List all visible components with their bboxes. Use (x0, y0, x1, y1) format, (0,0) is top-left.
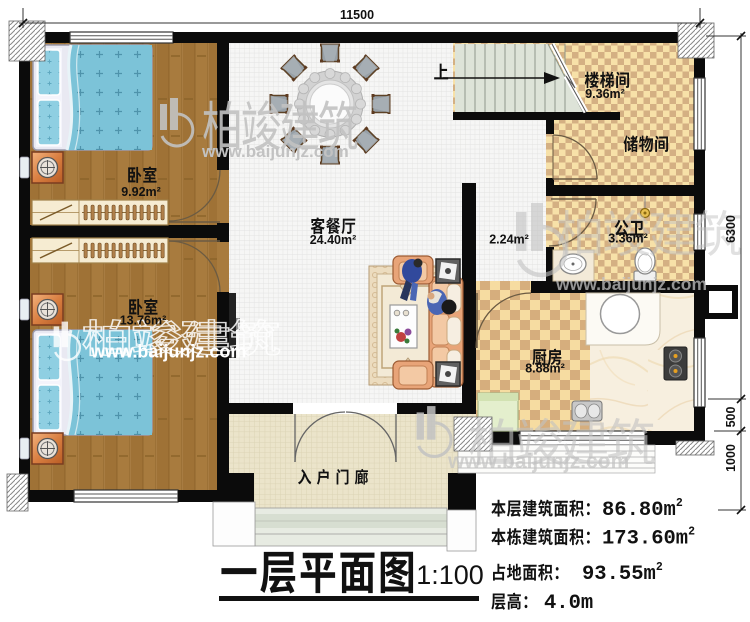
svg-text:www.baijunjz.com: www.baijunjz.com (447, 450, 629, 473)
svg-text:173.60m2: 173.60m2 (602, 526, 695, 551)
svg-text:www.baijunjz.com: www.baijunjz.com (201, 142, 349, 161)
svg-text:11500: 11500 (340, 8, 374, 22)
svg-text:www.baijunjz.com: www.baijunjz.com (555, 274, 707, 294)
svg-text:1:100: 1:100 (416, 560, 484, 590)
svg-text:93.55m2: 93.55m2 (582, 561, 663, 586)
svg-text:24.40m²: 24.40m² (310, 233, 357, 247)
svg-text:www.baijunjz.com: www.baijunjz.com (90, 342, 246, 362)
svg-text:500: 500 (724, 407, 738, 428)
svg-text:13.76m²: 13.76m² (120, 314, 167, 328)
svg-text:9.92m²: 9.92m² (121, 185, 161, 199)
svg-text:9.36m²: 9.36m² (585, 87, 625, 101)
svg-text:1000: 1000 (724, 444, 738, 472)
svg-text:2.24m²: 2.24m² (489, 233, 529, 247)
svg-text:86.80m2: 86.80m2 (602, 497, 683, 522)
svg-text:6300: 6300 (724, 215, 738, 243)
svg-text:8.88m²: 8.88m² (525, 362, 565, 376)
svg-text:3.36m²: 3.36m² (608, 232, 648, 246)
svg-text:4.0m: 4.0m (544, 592, 593, 615)
